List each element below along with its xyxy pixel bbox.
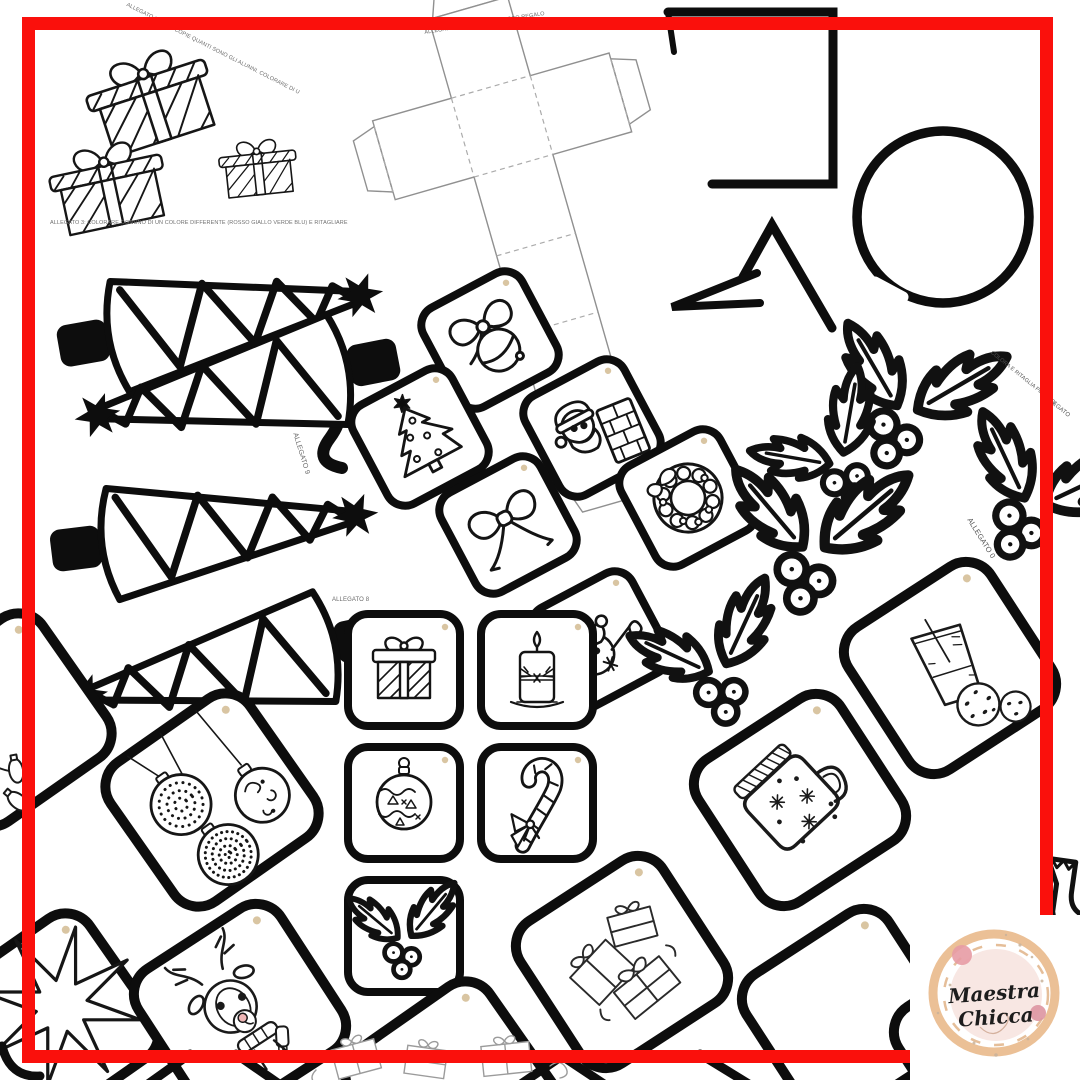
square-shape: [668, 12, 833, 184]
circle-shape: [857, 131, 1029, 303]
gift-card: [348, 614, 460, 726]
pink-dot: [952, 945, 972, 965]
candy-cane-card: [481, 747, 593, 859]
logo-box: Maestra Chicca: [910, 915, 1080, 1080]
angle-shape: [672, 273, 760, 307]
bauble-card: [348, 747, 460, 859]
gift-box: [79, 39, 224, 160]
gift-box: [217, 137, 299, 199]
holly-card: [339, 873, 468, 992]
candle-card: [481, 614, 593, 726]
caption-allegato-8: ALLEGATO 8: [332, 597, 369, 603]
gifts-coloring-page: [45, 39, 300, 237]
worksheet-collage: ALLEGATO 3: COLORARE OGNUNO DI UN COLORE…: [0, 0, 1080, 1080]
baubles-card: [94, 682, 331, 919]
gift-pile-card: [504, 844, 739, 1079]
zigzag-tree: [45, 456, 385, 607]
caption-allegato-3: ALLEGATO 3: COLORARE OGNUNO DI UN COLORE…: [50, 220, 348, 226]
